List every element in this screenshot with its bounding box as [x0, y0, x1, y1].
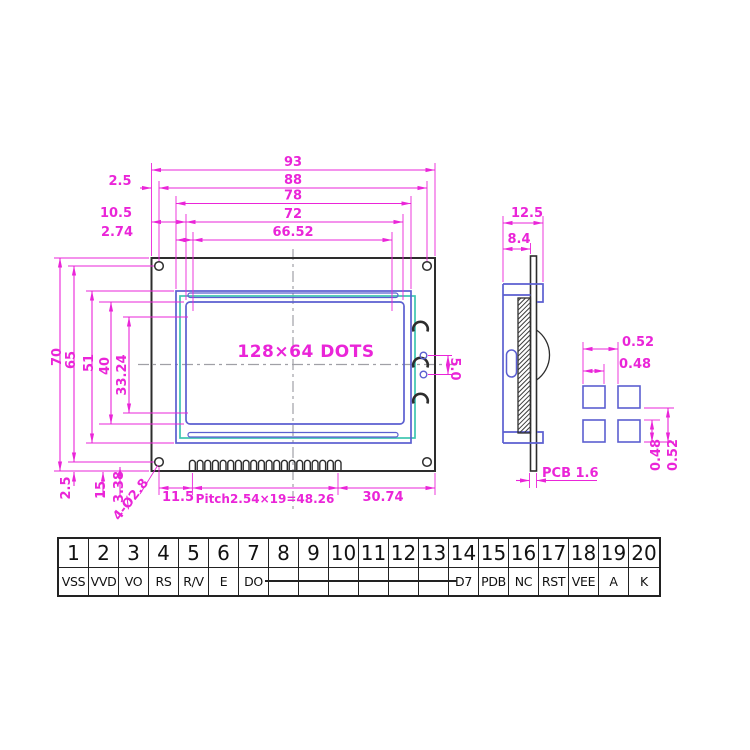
dim-label-10-5: 10.5	[100, 206, 132, 221]
pin-pad	[305, 460, 311, 471]
pin-label-cell: VO	[119, 568, 149, 595]
pin-pad	[251, 460, 257, 471]
dim-label-33-24: 33.24	[115, 354, 130, 395]
dim-label-0-52-right: 0.52	[666, 439, 681, 471]
dim-label-2-5-bottom: 2.5	[59, 476, 74, 499]
dim-label-88: 88	[284, 173, 302, 188]
mounting-hole	[423, 262, 432, 271]
dim-label-8-4: 8.4	[507, 232, 530, 247]
pin-label-cell: RS	[149, 568, 179, 595]
pin-number-cell: 7	[239, 539, 269, 568]
dim-label-2-74: 2.74	[101, 225, 133, 240]
pin-pad	[289, 460, 295, 471]
pin-pad	[320, 460, 326, 471]
pin-label-cell: PDB	[479, 568, 509, 595]
pin-label-cell: VSS	[59, 568, 89, 595]
pin-pad	[228, 460, 234, 471]
pin-pad	[312, 460, 318, 471]
pin-table-continuation-line	[265, 580, 457, 582]
pin-number-cell: 8	[269, 539, 299, 568]
pin-pad	[297, 460, 303, 471]
pin-label-cell	[299, 568, 329, 595]
pin-label-cell	[419, 568, 449, 595]
pin-number-cell: 1	[59, 539, 89, 568]
display-window	[186, 302, 404, 424]
dim-label-30-74: 30.74	[362, 490, 403, 505]
pin-number-cell: 18	[569, 539, 599, 568]
dim-label-0-48-right: 0.48	[649, 439, 664, 471]
pin-number-cell: 4	[149, 539, 179, 568]
pin-number-cell: 16	[509, 539, 539, 568]
smd-pad	[618, 420, 640, 442]
pin-label-cell	[269, 568, 299, 595]
dim-label-93: 93	[284, 155, 302, 170]
pin-number-cell: 9	[299, 539, 329, 568]
pin-number-cell: 10	[329, 539, 359, 568]
pin-label-cell: K	[629, 568, 659, 595]
pin-number-cell: 2	[89, 539, 119, 568]
pin-label-cell: DO	[239, 568, 269, 595]
dim-label-12-5: 12.5	[511, 206, 543, 221]
pad-detail-view: 0.52 0.48 0.48 0.52	[583, 335, 681, 471]
pin-pad	[328, 460, 334, 471]
pin-label-cell: NC	[509, 568, 539, 595]
pcb-side-profile	[531, 256, 537, 471]
backlight-arc	[537, 330, 550, 380]
pin-number-cell: 14	[449, 539, 479, 568]
smd-pad	[583, 386, 605, 408]
mounting-hole	[155, 458, 164, 467]
display-frame-teal	[180, 296, 415, 438]
pin-pad	[213, 460, 219, 471]
pcb-thickness-label: PCB 1.6	[542, 466, 599, 481]
dim-label-70: 70	[50, 348, 65, 366]
pin-number-cell: 15	[479, 539, 509, 568]
contact-pin-hole	[420, 371, 427, 378]
pin-table-grid: 1234567891011121314151617181920VSSVVDVOR…	[57, 537, 661, 597]
pin-pad	[190, 460, 196, 471]
pin-row	[190, 460, 342, 471]
pin-number-cell: 12	[389, 539, 419, 568]
pin-label-cell: E	[209, 568, 239, 595]
pin-label-cell: A	[599, 568, 629, 595]
pin-number-cell: 13	[419, 539, 449, 568]
pin-pad	[220, 460, 226, 471]
pin-number-cell: 19	[599, 539, 629, 568]
glass-hatch	[518, 298, 531, 433]
pin-pad	[274, 460, 280, 471]
dim-label-72: 72	[284, 207, 302, 222]
pin-pad	[205, 460, 211, 471]
mounting-hole	[155, 262, 164, 271]
pin-label-cell	[359, 568, 389, 595]
pin-label-cell: VEE	[569, 568, 599, 595]
dim-label-78: 78	[284, 189, 302, 204]
pin-pad	[259, 460, 265, 471]
pin-label-cell	[389, 568, 419, 595]
pin-number-cell: 5	[179, 539, 209, 568]
dim-label-51: 51	[82, 354, 97, 372]
pin-pad	[197, 460, 203, 471]
pin-pad	[243, 460, 249, 471]
pin-pad	[282, 460, 288, 471]
pin-pad	[335, 460, 341, 471]
pin-number-cell: 11	[359, 539, 389, 568]
side-view: 12.5 8.4 PCB 1.6	[503, 206, 599, 488]
smd-pad	[583, 420, 605, 442]
dim-label-2-5-top: 2.5	[108, 174, 131, 189]
pin-number-cell: 3	[119, 539, 149, 568]
pin-label-cell: R/V	[179, 568, 209, 595]
dim-label-5-0: 5.0	[447, 357, 462, 380]
mounting-hole	[423, 458, 432, 467]
side-capsule-clip	[507, 350, 517, 377]
pin-pad	[236, 460, 242, 471]
dim-label-66-52: 66.52	[272, 225, 313, 240]
dim-label-0-52-top: 0.52	[622, 335, 654, 350]
dim-label-40: 40	[98, 357, 113, 375]
display-resolution-label: 128×64 DOTS	[237, 342, 374, 362]
pin-number-cell: 6	[209, 539, 239, 568]
pin-number-cell: 20	[629, 539, 659, 568]
dim-label-pitch: Pitch2.54×19=48.26	[196, 492, 335, 506]
dim-label-0-48-top: 0.48	[619, 357, 651, 372]
pin-label-cell: VVD	[89, 568, 119, 595]
pin-number-cell: 17	[539, 539, 569, 568]
pin-label-cell: D7	[449, 568, 479, 595]
pin-label-cell	[329, 568, 359, 595]
pin-pad	[266, 460, 272, 471]
lcd-module-drawing: 128×64 DOTS	[0, 0, 750, 532]
dim-label-65: 65	[64, 351, 79, 369]
smd-pad	[618, 386, 640, 408]
pin-label-cell: RST	[539, 568, 569, 595]
dim-label-11-5: 11.5	[162, 490, 194, 505]
dim-label-15: 15	[94, 481, 109, 499]
